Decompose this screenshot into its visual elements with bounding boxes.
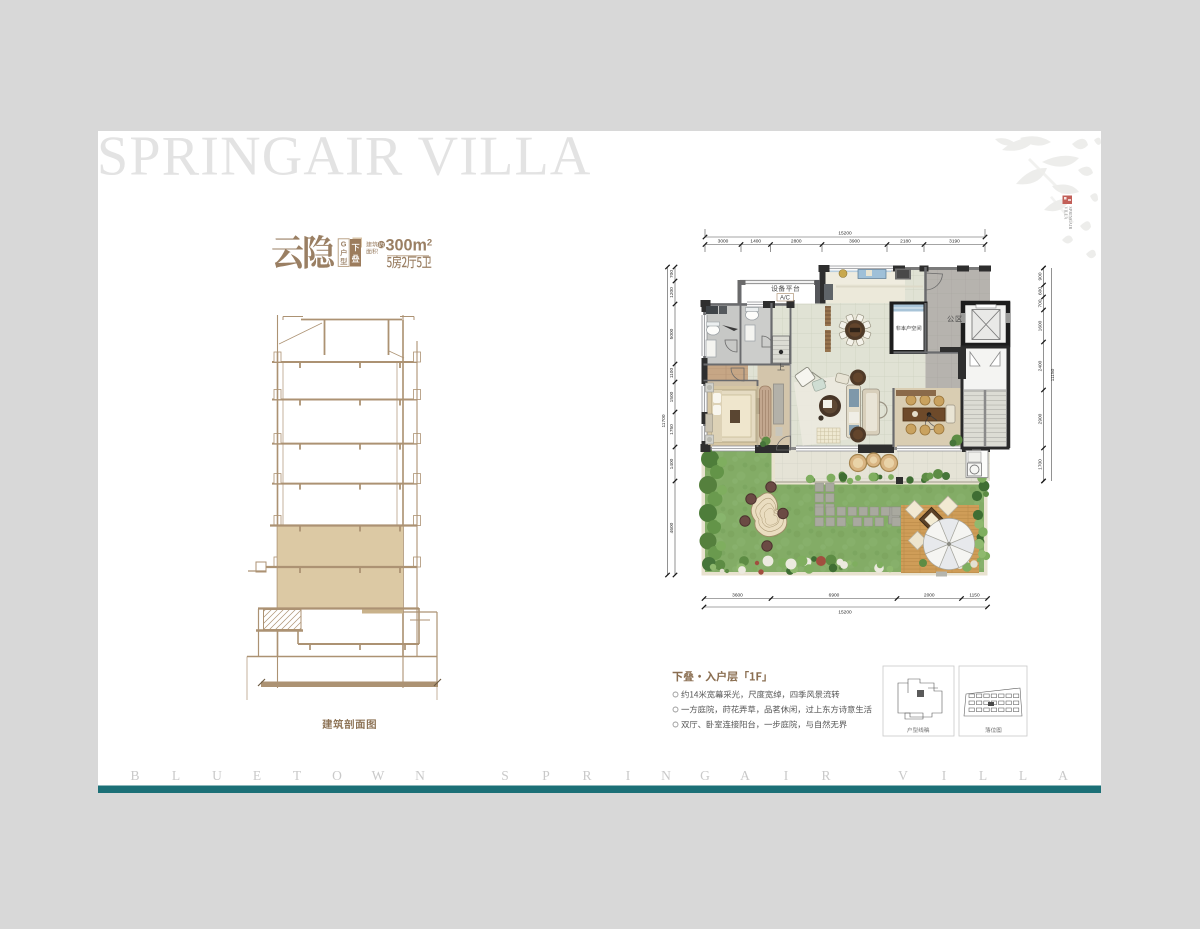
svg-text:O: O (332, 768, 342, 783)
svg-text:T: T (293, 768, 302, 783)
svg-text:L: L (979, 768, 987, 783)
svg-text:G: G (341, 240, 347, 249)
svg-text:4600: 4600 (669, 522, 675, 533)
svg-text:L: L (172, 768, 180, 783)
svg-text:15200: 15200 (838, 610, 852, 616)
svg-text:I: I (784, 768, 789, 783)
svg-text:A/C: A/C (780, 296, 791, 302)
svg-text:900: 900 (1038, 272, 1044, 280)
svg-text:N: N (415, 768, 425, 783)
svg-text:VILLA: VILLA (1064, 207, 1069, 220)
svg-text:1400: 1400 (669, 458, 675, 469)
svg-text:S: S (501, 768, 509, 783)
svg-text:A: A (1058, 768, 1068, 783)
svg-text:3600: 3600 (732, 593, 743, 599)
svg-text:2180: 2180 (900, 239, 911, 245)
svg-text:11700: 11700 (661, 414, 667, 427)
svg-text:2400: 2400 (1038, 360, 1044, 371)
svg-text:700: 700 (1038, 299, 1044, 307)
svg-text:1600: 1600 (1038, 320, 1044, 331)
svg-text:1100: 1100 (669, 368, 675, 379)
svg-text:2000: 2000 (924, 593, 935, 599)
svg-text:11150: 11150 (1050, 368, 1056, 381)
svg-text:1500: 1500 (669, 391, 675, 402)
svg-text:G: G (700, 768, 710, 783)
svg-text:3900: 3900 (849, 239, 860, 245)
svg-text:3000: 3000 (718, 239, 729, 245)
svg-text:1200: 1200 (669, 287, 675, 298)
svg-text:V: V (898, 768, 908, 783)
svg-text:3190: 3190 (949, 239, 960, 245)
svg-text:5000: 5000 (669, 328, 675, 339)
svg-text:E: E (253, 768, 261, 783)
svg-text:15200: 15200 (838, 231, 852, 237)
svg-text:6900: 6900 (829, 593, 840, 599)
svg-text:W: W (372, 768, 385, 783)
svg-text:1750: 1750 (669, 424, 675, 435)
svg-text:R: R (582, 768, 591, 783)
svg-text:P: P (542, 768, 550, 783)
svg-text:1700: 1700 (1038, 459, 1044, 470)
svg-text:B: B (130, 768, 139, 783)
svg-text:L: L (1019, 768, 1027, 783)
svg-text:R: R (821, 768, 830, 783)
svg-text:1400: 1400 (750, 239, 761, 245)
svg-text:I: I (626, 768, 631, 783)
svg-text:I: I (942, 768, 947, 783)
svg-text:1150: 1150 (969, 593, 980, 599)
svg-text:2800: 2800 (791, 239, 802, 245)
svg-text:600: 600 (1038, 287, 1044, 295)
svg-text:2900: 2900 (1038, 413, 1044, 424)
svg-text:300m2: 300m2 (386, 237, 433, 255)
svg-text:700: 700 (669, 270, 675, 278)
svg-text:U: U (212, 768, 222, 783)
svg-text:N: N (661, 768, 671, 783)
svg-text:A: A (740, 768, 750, 783)
svg-text:SPRINGAIR VILLA: SPRINGAIR VILLA (97, 126, 592, 188)
